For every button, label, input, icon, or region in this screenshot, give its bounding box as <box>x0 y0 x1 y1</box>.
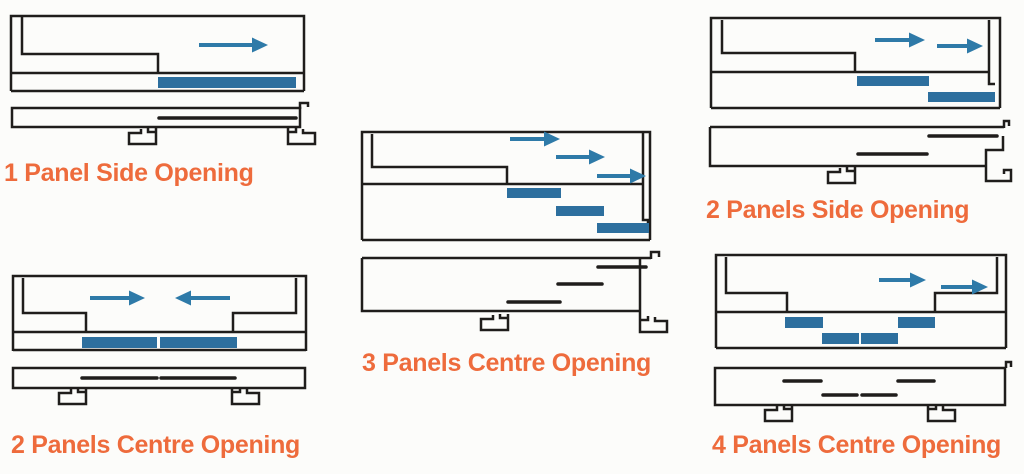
mounting-clip <box>59 388 86 404</box>
glass-panel <box>928 92 995 102</box>
slide-direction-arrow-head <box>175 291 191 306</box>
frame-outline <box>233 278 296 333</box>
panel-configurations-figure: 1 Panel Side Opening 2 Panels Centre Ope… <box>0 0 1024 474</box>
frame-outline <box>13 368 305 388</box>
slide-direction-arrow-head <box>909 33 925 48</box>
mounting-clip <box>288 128 315 144</box>
slide-direction-arrow-head <box>544 132 560 147</box>
frame-outline <box>651 252 659 259</box>
frame-outline <box>935 257 997 312</box>
glass-panel <box>785 317 823 328</box>
mounting-clip <box>765 405 792 421</box>
label-1-panel-side-opening: 1 Panel Side Opening <box>4 159 254 188</box>
frame-outline <box>726 257 787 312</box>
diagram-3-panels-centre-opening <box>362 132 667 333</box>
mounting-clip <box>129 128 156 144</box>
glass-panel <box>158 77 296 88</box>
slide-direction-arrow-head <box>967 39 983 54</box>
diagram-2-panels-side-opening <box>710 18 1011 183</box>
frame-outline <box>372 134 507 184</box>
mounting-clip <box>232 388 259 404</box>
mounting-clip <box>640 316 667 332</box>
slide-direction-arrow-head <box>910 273 926 288</box>
glass-panel <box>597 223 649 233</box>
glass-panel <box>898 317 935 328</box>
diagram-2-panels-centre-opening <box>13 276 306 404</box>
glass-panel <box>822 333 859 344</box>
frame-outline <box>715 368 1005 405</box>
label-4-panels-centre-opening: 4 Panels Centre Opening <box>712 431 1001 460</box>
glass-panel <box>82 337 157 348</box>
diagram-canvas <box>0 0 1024 474</box>
frame-outline <box>300 103 308 109</box>
label-2-panels-centre-opening: 2 Panels Centre Opening <box>11 431 300 460</box>
frame-outline <box>643 132 648 227</box>
mounting-clip <box>928 405 955 421</box>
frame-outline <box>989 20 995 84</box>
mounting-clip <box>481 314 508 330</box>
glass-panel <box>857 76 929 86</box>
frame-outline <box>23 278 86 333</box>
label-2-panels-side-opening: 2 Panels Side Opening <box>706 196 969 225</box>
frame-outline <box>710 127 986 166</box>
diagram-1-panel-side-opening <box>11 16 315 144</box>
frame-outline <box>722 20 855 72</box>
frame-outline <box>1004 121 1009 128</box>
glass-panel <box>160 337 237 348</box>
mounting-clip <box>828 167 855 183</box>
slide-direction-arrow-head <box>129 291 145 306</box>
diagram-4-panels-centre-opening <box>715 255 1011 421</box>
frame-outline <box>986 136 1011 181</box>
label-3-panels-centre-opening: 3 Panels Centre Opening <box>362 349 651 378</box>
glass-panel <box>507 188 561 198</box>
glass-panel <box>556 206 604 216</box>
frame-outline <box>1006 362 1011 368</box>
frame-outline <box>22 17 158 74</box>
glass-panel <box>861 333 898 344</box>
slide-direction-arrow-head <box>252 38 268 53</box>
slide-direction-arrow-head <box>589 150 605 165</box>
